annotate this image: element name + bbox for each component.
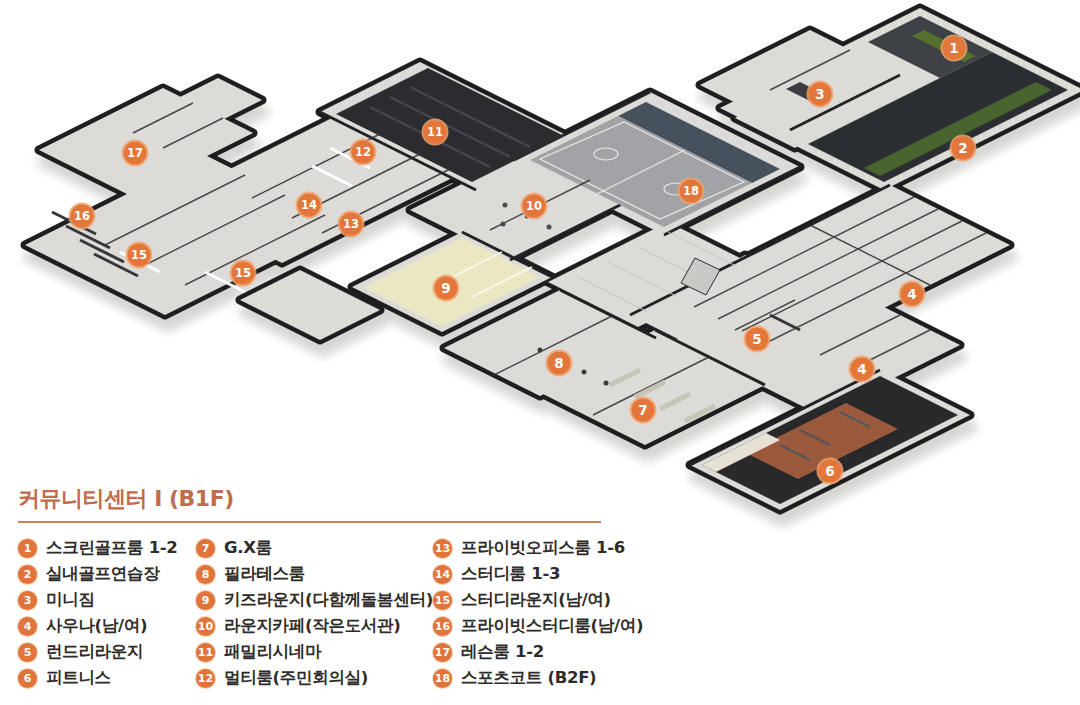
legend-item-17: 17레슨룸 1-2 [433, 639, 1066, 665]
legend-item-label: 런드리라운지 [46, 641, 143, 663]
svg-text:12: 12 [355, 145, 371, 159]
legend-number-badge: 11 [196, 643, 215, 662]
legend-number-badge: 10 [196, 617, 215, 636]
legend-number-badge: 13 [433, 539, 452, 558]
plan-marker-10: 10 [521, 193, 548, 220]
plan-marker-8: 8 [546, 350, 573, 377]
title-underline [18, 521, 601, 523]
legend-item-label: 멀티룸(주민회의실) [224, 667, 368, 689]
svg-text:18: 18 [683, 184, 699, 198]
svg-text:7: 7 [638, 402, 647, 418]
legend-item-label: 레슨룸 1-2 [461, 641, 544, 663]
legend-number-badge: 3 [18, 591, 37, 610]
legend-column-3: 13프라이빗오피스룸 1-614스터디룸 1-315스터디라운지(남/여)16프… [433, 535, 1066, 691]
svg-text:6: 6 [825, 463, 834, 479]
legend-number-badge: 4 [18, 617, 37, 636]
plan-marker-16: 16 [69, 203, 96, 230]
legend-number-badge: 17 [433, 643, 452, 662]
legend-item-label: 스터디라운지(남/여) [461, 589, 611, 611]
svg-text:10: 10 [526, 199, 542, 213]
svg-text:4: 4 [857, 361, 866, 377]
legend-item-8: 8필라테스룸 [196, 561, 433, 587]
building-floors [25, 8, 1080, 510]
legend-item-1: 1스크린골프룸 1-2 [18, 535, 196, 561]
svg-text:1: 1 [949, 40, 958, 56]
legend-number-badge: 1 [18, 539, 37, 558]
plan-marker-7: 7 [630, 397, 657, 424]
legend-item-11: 11패밀리시네마 [196, 639, 433, 665]
legend-item-label: 스크린골프룸 1-2 [46, 537, 178, 559]
legend-columns: 1스크린골프룸 1-22실내골프연습장3미니짐4사우나(남/여)5런드리라운지6… [18, 535, 1066, 691]
legend-item-label: 프라이빗스터디룸(남/여) [461, 615, 643, 637]
plan-marker-9: 9 [433, 275, 460, 302]
plan-marker-3: 3 [807, 81, 834, 108]
plan-marker-13: 13 [338, 211, 365, 238]
plan-marker-14: 14 [296, 192, 323, 219]
legend-number-badge: 6 [18, 669, 37, 688]
legend: 커뮤니티센터 Ⅰ (B1F) 1스크린골프룸 1-22실내골프연습장3미니짐4사… [18, 484, 1066, 691]
legend-number-badge: 12 [196, 669, 215, 688]
plan-marker-15: 15 [230, 260, 257, 287]
legend-item-6: 6피트니스 [18, 665, 196, 691]
legend-item-label: G.X룸 [224, 537, 272, 559]
plan-marker-12: 12 [350, 139, 377, 166]
svg-text:14: 14 [301, 198, 317, 212]
legend-item-12: 12멀티룸(주민회의실) [196, 665, 433, 691]
legend-item-label: 스포츠코트 (B2F) [461, 667, 596, 689]
svg-text:8: 8 [554, 355, 563, 371]
plan-marker-5: 5 [744, 326, 771, 353]
plan-marker-2: 2 [950, 135, 977, 162]
page-title: 커뮤니티센터 Ⅰ (B1F) [18, 484, 1066, 514]
svg-text:13: 13 [343, 217, 359, 231]
legend-item-label: 라운지카페(작은도서관) [224, 615, 400, 637]
legend-column-2: 7G.X룸8필라테스룸9키즈라운지(다함께돌봄센터)10라운지카페(작은도서관)… [196, 535, 433, 691]
plan-marker-17: 17 [122, 140, 149, 167]
legend-number-badge: 18 [433, 669, 452, 688]
legend-number-badge: 8 [196, 565, 215, 584]
svg-text:16: 16 [74, 209, 90, 223]
plan-marker-4: 4 [849, 356, 876, 383]
legend-item-15: 15스터디라운지(남/여) [433, 587, 1066, 613]
svg-text:15: 15 [235, 266, 251, 280]
svg-text:4: 4 [907, 286, 916, 302]
legend-item-14: 14스터디룸 1-3 [433, 561, 1066, 587]
legend-number-badge: 14 [433, 565, 452, 584]
plan-marker-4: 4 [899, 281, 926, 308]
plan-marker-11: 11 [422, 119, 449, 146]
legend-item-10: 10라운지카페(작은도서관) [196, 613, 433, 639]
legend-item-3: 3미니짐 [18, 587, 196, 613]
svg-text:5: 5 [752, 331, 761, 347]
legend-item-label: 실내골프연습장 [46, 563, 159, 585]
svg-text:9: 9 [441, 280, 450, 296]
svg-text:11: 11 [427, 125, 443, 139]
plan-marker-6: 6 [817, 458, 844, 485]
legend-item-label: 스터디룸 1-3 [461, 563, 560, 585]
legend-column-1: 1스크린골프룸 1-22실내골프연습장3미니짐4사우나(남/여)5런드리라운지6… [18, 535, 196, 691]
svg-text:17: 17 [127, 146, 143, 160]
legend-item-13: 13프라이빗오피스룸 1-6 [433, 535, 1066, 561]
legend-number-badge: 2 [18, 565, 37, 584]
svg-text:15: 15 [131, 248, 147, 262]
plan-marker-15: 15 [126, 242, 153, 269]
plan-marker-18: 18 [678, 178, 705, 205]
legend-item-label: 피트니스 [46, 667, 111, 689]
legend-item-label: 필라테스룸 [224, 563, 305, 585]
legend-item-7: 7G.X룸 [196, 535, 433, 561]
legend-item-9: 9키즈라운지(다함께돌봄센터) [196, 587, 433, 613]
legend-number-badge: 5 [18, 643, 37, 662]
legend-number-badge: 7 [196, 539, 215, 558]
svg-text:2: 2 [958, 140, 967, 156]
plan-marker-1: 1 [941, 35, 968, 62]
legend-item-label: 키즈라운지(다함께돌봄센터) [224, 589, 433, 611]
legend-item-label: 패밀리시네마 [224, 641, 321, 663]
legend-number-badge: 9 [196, 591, 215, 610]
legend-item-16: 16프라이빗스터디룸(남/여) [433, 613, 1066, 639]
legend-number-badge: 16 [433, 617, 452, 636]
legend-number-badge: 15 [433, 591, 452, 610]
svg-text:3: 3 [815, 86, 824, 102]
legend-item-label: 사우나(남/여) [46, 615, 147, 637]
legend-item-label: 미니짐 [46, 589, 95, 611]
legend-item-2: 2실내골프연습장 [18, 561, 196, 587]
legend-item-4: 4사우나(남/여) [18, 613, 196, 639]
legend-item-label: 프라이빗오피스룸 1-6 [461, 537, 625, 559]
legend-item-5: 5런드리라운지 [18, 639, 196, 665]
legend-item-18: 18스포츠코트 (B2F) [433, 665, 1066, 691]
